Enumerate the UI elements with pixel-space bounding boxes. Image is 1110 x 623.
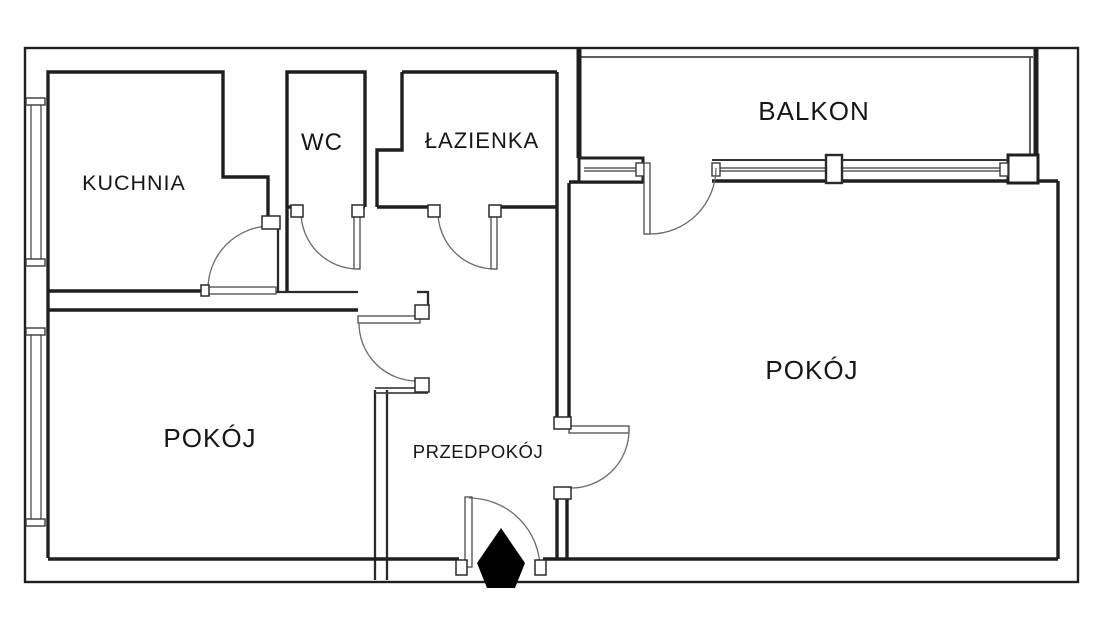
window-end-cap xyxy=(26,98,45,105)
door-jamb xyxy=(456,560,467,575)
window-pokoj-left xyxy=(26,328,45,526)
room-label-kuchnia: KUCHNIA xyxy=(82,171,186,195)
window-end-cap xyxy=(26,328,45,335)
floor-plan-page: KUCHNIA WC ŁAZIENKA BALKON POKÓJ POKÓJ P… xyxy=(0,0,1110,623)
door-jamb xyxy=(415,378,429,392)
door-swing-arc xyxy=(570,430,629,488)
room-label-przedpokoj: PRZEDPOKÓJ xyxy=(413,441,543,462)
outer-wall-line xyxy=(25,48,1078,582)
door-bathroom xyxy=(438,211,497,269)
window-end-cap xyxy=(1000,163,1008,176)
door-swing-arc xyxy=(208,226,271,289)
room-label-lazienka: ŁAZIENKA xyxy=(425,128,539,153)
kitchen-walls xyxy=(48,72,268,558)
door-jamb xyxy=(554,487,571,499)
door-swing-arc xyxy=(359,323,417,381)
door-swing-arc xyxy=(438,212,495,269)
bathroom-left-walls xyxy=(377,72,402,207)
window-mullion xyxy=(826,155,842,183)
door-jamb xyxy=(291,205,303,217)
door-balcony xyxy=(644,163,716,234)
entrance-marker xyxy=(477,528,525,588)
window-end-cap xyxy=(26,259,45,266)
room-label-pokoj-left: POKÓJ xyxy=(163,423,256,453)
balcony-corner-block xyxy=(1008,155,1038,183)
door-swing-arc xyxy=(301,212,358,269)
door-jamb xyxy=(415,305,429,319)
door-leaf xyxy=(208,287,276,294)
door-leaf xyxy=(354,211,360,269)
door-leaf xyxy=(491,211,497,269)
door-jamb xyxy=(489,205,501,217)
door-pokoj-left xyxy=(358,316,420,381)
balcony-window-assembly xyxy=(579,155,1008,183)
door-wc xyxy=(301,211,360,269)
floor-plan-canvas: KUCHNIA WC ŁAZIENKA BALKON POKÓJ POKÓJ P… xyxy=(0,0,1110,623)
door-jamb xyxy=(535,560,546,575)
door-leaf xyxy=(644,163,650,234)
door-kitchen xyxy=(208,226,276,294)
window-end-cap xyxy=(26,519,45,526)
door-jamb xyxy=(262,216,280,229)
room-label-wc: WC xyxy=(301,129,343,156)
door-pokoj-right xyxy=(569,426,629,488)
room-labels: KUCHNIA WC ŁAZIENKA BALKON POKÓJ POKÓJ P… xyxy=(82,96,870,462)
door-jamb xyxy=(428,205,440,217)
door-leaf xyxy=(465,497,472,567)
door-jamb xyxy=(554,417,571,429)
outer-boundary xyxy=(25,48,1078,582)
door-jamb xyxy=(201,285,209,296)
window-end-cap xyxy=(636,163,644,176)
door-leaf xyxy=(358,316,420,323)
door-swing-arc xyxy=(650,168,716,234)
room-label-pokoj-right: POKÓJ xyxy=(765,355,858,385)
interior-walls xyxy=(48,72,1058,580)
balcony-glazed-panel xyxy=(579,158,643,182)
room-label-balkon: BALKON xyxy=(758,96,870,126)
door-jamb xyxy=(352,205,364,217)
door-leaf xyxy=(569,426,629,433)
window-kitchen xyxy=(26,98,45,266)
